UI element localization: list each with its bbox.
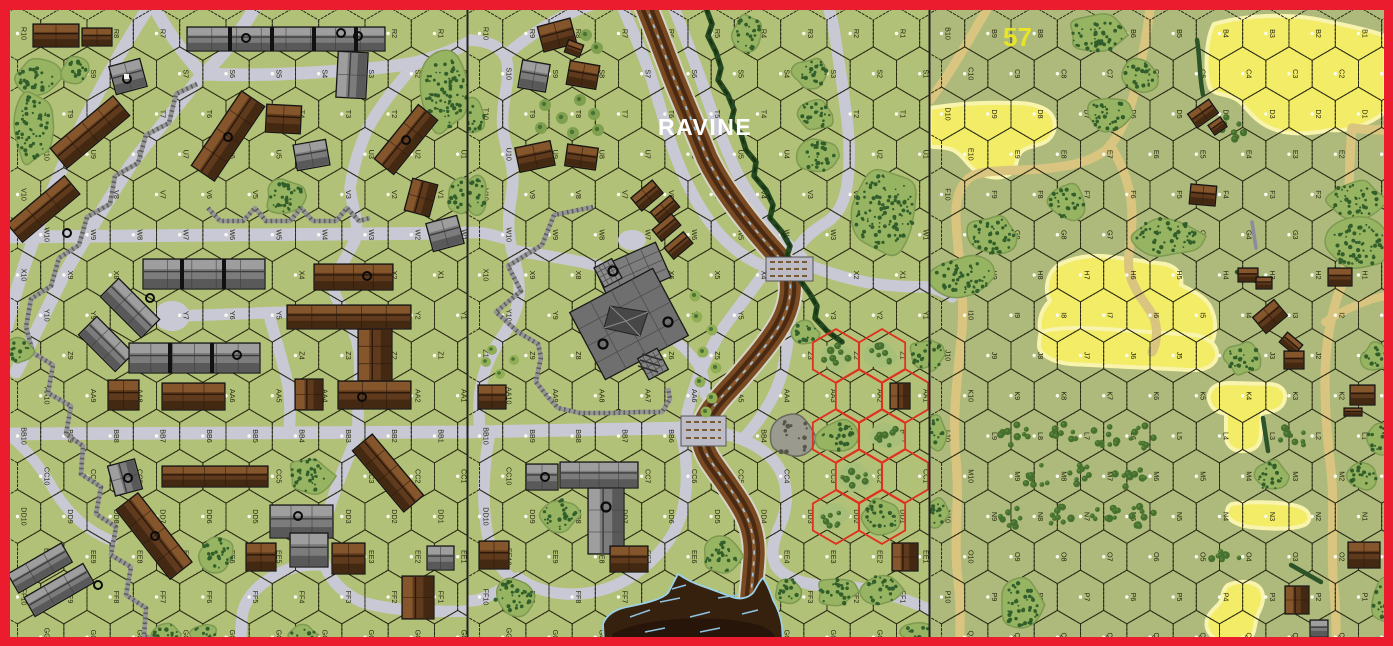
svg-text:H5: H5 (1175, 270, 1184, 279)
svg-text:S9: S9 (551, 69, 560, 78)
svg-text:W9: W9 (551, 229, 560, 240)
svg-text:L2: L2 (1314, 432, 1323, 440)
svg-text:V2: V2 (390, 190, 399, 199)
svg-text:FF3: FF3 (344, 591, 353, 604)
svg-text:G3: G3 (1291, 230, 1300, 240)
svg-text:DD3: DD3 (344, 509, 353, 523)
svg-text:X2: X2 (852, 271, 861, 280)
svg-text:C10: C10 (967, 67, 976, 80)
svg-text:V9: V9 (528, 190, 537, 199)
svg-text:FF7: FF7 (158, 591, 167, 604)
svg-text:W2: W2 (413, 229, 422, 240)
svg-text:BB6: BB6 (667, 429, 676, 443)
svg-text:EE4: EE4 (783, 550, 792, 564)
svg-text:N5: N5 (1175, 512, 1184, 521)
svg-text:M4: M4 (1245, 471, 1254, 481)
svg-text:FF7: FF7 (620, 591, 629, 604)
svg-text:X1: X1 (436, 271, 445, 280)
svg-text:K7: K7 (1106, 391, 1115, 400)
svg-text:FF8: FF8 (112, 591, 121, 604)
svg-text:I10: I10 (967, 310, 976, 320)
svg-text:BB1: BB1 (436, 429, 445, 443)
svg-text:L7: L7 (1082, 432, 1091, 440)
svg-text:O4: O4 (1245, 552, 1254, 562)
svg-text:X5: X5 (713, 271, 722, 280)
svg-text:R9: R9 (528, 29, 537, 38)
svg-text:Z3: Z3 (344, 351, 353, 359)
svg-text:T4: T4 (759, 110, 768, 118)
svg-text:S6: S6 (690, 69, 699, 78)
svg-text:AA9: AA9 (89, 389, 98, 403)
svg-text:N1: N1 (1360, 512, 1369, 521)
svg-text:B4: B4 (1221, 29, 1230, 38)
svg-text:H2: H2 (1314, 270, 1323, 279)
svg-text:P6: P6 (1129, 593, 1138, 602)
svg-text:S10: S10 (505, 67, 514, 80)
svg-text:BB8: BB8 (112, 429, 121, 443)
svg-text:I6: I6 (1152, 312, 1161, 318)
svg-text:W6: W6 (690, 229, 699, 240)
svg-text:BB4: BB4 (297, 429, 306, 443)
svg-text:BB7: BB7 (158, 429, 167, 443)
svg-text:B2: B2 (1314, 29, 1323, 38)
svg-text:H6: H6 (1129, 270, 1138, 279)
svg-text:J9: J9 (990, 352, 999, 360)
svg-text:AA2: AA2 (413, 389, 422, 403)
svg-text:DD5: DD5 (251, 509, 260, 523)
svg-text:FF3: FF3 (806, 591, 815, 604)
svg-text:E2: E2 (1337, 150, 1346, 159)
svg-text:BB8: BB8 (574, 429, 583, 443)
svg-text:V1: V1 (436, 190, 445, 199)
svg-text:C7: C7 (1106, 69, 1115, 78)
svg-text:CC6: CC6 (690, 469, 699, 483)
svg-text:T7: T7 (620, 110, 629, 118)
svg-text:Z1: Z1 (898, 351, 907, 359)
svg-text:S6: S6 (228, 69, 237, 78)
svg-text:M6: M6 (1152, 471, 1161, 481)
svg-text:CC2: CC2 (413, 469, 422, 483)
svg-text:S5: S5 (274, 69, 283, 78)
svg-text:E6: E6 (1152, 150, 1161, 159)
svg-text:L8: L8 (1036, 432, 1045, 440)
svg-text:BB7: BB7 (620, 429, 629, 443)
svg-text:D10: D10 (944, 107, 953, 120)
svg-text:O5: O5 (1198, 552, 1207, 562)
svg-text:D3: D3 (1268, 109, 1277, 118)
svg-text:S3: S3 (367, 69, 376, 78)
svg-text:H1: H1 (1360, 270, 1369, 279)
svg-text:R7: R7 (620, 29, 629, 38)
svg-text:CC10: CC10 (505, 467, 514, 485)
svg-text:R8: R8 (112, 29, 121, 38)
svg-text:BB2: BB2 (390, 429, 399, 443)
svg-text:V3: V3 (344, 190, 353, 199)
svg-text:U9: U9 (89, 150, 98, 159)
svg-text:M2: M2 (1337, 471, 1346, 481)
svg-text:I8: I8 (1059, 312, 1068, 318)
svg-text:Z4: Z4 (297, 351, 306, 359)
svg-text:S5: S5 (736, 69, 745, 78)
svg-text:DD9: DD9 (66, 509, 75, 523)
svg-text:E5: E5 (1198, 150, 1207, 159)
svg-text:FF5: FF5 (251, 591, 260, 604)
svg-text:S7: S7 (182, 69, 191, 78)
svg-text:R5: R5 (713, 29, 722, 38)
svg-text:U8: U8 (597, 150, 606, 159)
svg-text:M9: M9 (1013, 471, 1022, 481)
svg-text:N4: N4 (1221, 512, 1230, 521)
svg-text:N8: N8 (1036, 512, 1045, 521)
svg-text:U4: U4 (783, 150, 792, 159)
svg-text:Y5: Y5 (736, 311, 745, 320)
svg-text:AA6: AA6 (690, 389, 699, 403)
svg-text:B9: B9 (990, 29, 999, 38)
svg-text:S7: S7 (644, 69, 653, 78)
svg-text:C3: C3 (1291, 69, 1300, 78)
svg-text:CC7: CC7 (644, 469, 653, 483)
svg-text:F5: F5 (1175, 190, 1184, 198)
svg-text:W8: W8 (135, 229, 144, 240)
svg-text:S2: S2 (875, 69, 884, 78)
svg-text:DD6: DD6 (205, 509, 214, 523)
svg-text:T3: T3 (344, 110, 353, 118)
svg-text:FF1: FF1 (436, 591, 445, 604)
svg-text:X10: X10 (482, 269, 491, 282)
svg-text:X1: X1 (898, 271, 907, 280)
svg-text:V5: V5 (251, 190, 260, 199)
svg-text:E4: E4 (1245, 150, 1254, 159)
svg-text:G7: G7 (1106, 230, 1115, 240)
svg-text:X8: X8 (574, 271, 583, 280)
svg-text:AA7: AA7 (644, 389, 653, 403)
svg-text:K8: K8 (1059, 391, 1068, 400)
svg-text:C9: C9 (1013, 69, 1022, 78)
svg-text:T9: T9 (528, 110, 537, 118)
svg-text:BB3: BB3 (344, 429, 353, 443)
svg-text:F10: F10 (944, 188, 953, 200)
svg-text:DD5: DD5 (713, 509, 722, 523)
svg-text:J3: J3 (1268, 352, 1277, 360)
svg-text:BB9: BB9 (528, 429, 537, 443)
svg-text:B5: B5 (1175, 29, 1184, 38)
svg-text:CC5: CC5 (274, 469, 283, 483)
svg-text:U2: U2 (875, 150, 884, 159)
svg-text:J6: J6 (1129, 352, 1138, 360)
svg-text:EE2: EE2 (875, 550, 884, 564)
svg-text:BB10: BB10 (20, 427, 29, 445)
svg-text:D8: D8 (1036, 109, 1045, 118)
svg-text:Y7: Y7 (182, 311, 191, 320)
svg-text:R10: R10 (482, 27, 491, 40)
svg-text:T2: T2 (852, 110, 861, 118)
svg-text:I5: I5 (1198, 312, 1207, 318)
svg-text:U10: U10 (505, 148, 514, 161)
svg-text:T8: T8 (574, 110, 583, 118)
svg-text:DD1: DD1 (436, 509, 445, 523)
svg-text:T6: T6 (205, 110, 214, 118)
svg-text:EE3: EE3 (367, 550, 376, 564)
svg-text:N9: N9 (990, 512, 999, 521)
svg-text:N2: N2 (1314, 512, 1323, 521)
svg-text:T1: T1 (898, 110, 907, 118)
svg-text:F3: F3 (1268, 190, 1277, 198)
svg-text:Z9: Z9 (66, 351, 75, 359)
svg-text:C4: C4 (1245, 69, 1254, 78)
svg-text:EE9: EE9 (89, 550, 98, 564)
svg-text:D5: D5 (1175, 109, 1184, 118)
svg-text:K6: K6 (1152, 391, 1161, 400)
svg-text:F6: F6 (1129, 190, 1138, 198)
svg-text:E7: E7 (1106, 150, 1115, 159)
svg-text:O7: O7 (1106, 552, 1115, 562)
svg-text:DD10: DD10 (20, 507, 29, 525)
svg-text:O3: O3 (1291, 552, 1300, 562)
svg-text:BB5: BB5 (251, 429, 260, 443)
svg-text:P10: P10 (944, 591, 953, 604)
svg-text:Z6: Z6 (667, 351, 676, 359)
svg-text:W6: W6 (228, 229, 237, 240)
svg-text:FF6: FF6 (205, 591, 214, 604)
svg-text:X10: X10 (20, 269, 29, 282)
svg-text:H7: H7 (1082, 270, 1091, 279)
svg-text:B10: B10 (944, 27, 953, 40)
svg-text:FF2: FF2 (390, 591, 399, 604)
svg-text:U5: U5 (274, 150, 283, 159)
svg-text:X9: X9 (66, 271, 75, 280)
svg-text:FF4: FF4 (297, 591, 306, 604)
svg-text:N3: N3 (1268, 512, 1277, 521)
svg-text:I3: I3 (1291, 312, 1300, 318)
svg-text:Z5: Z5 (713, 351, 722, 359)
svg-text:K4: K4 (1245, 391, 1254, 400)
svg-text:R10: R10 (20, 27, 29, 40)
svg-text:W8: W8 (597, 229, 606, 240)
svg-text:FF10: FF10 (482, 589, 491, 606)
svg-text:F2: F2 (1314, 190, 1323, 198)
svg-text:W10: W10 (505, 227, 514, 242)
svg-text:V10: V10 (20, 188, 29, 201)
svg-text:Y5: Y5 (274, 311, 283, 320)
svg-text:DD6: DD6 (667, 509, 676, 523)
svg-text:M5: M5 (1198, 471, 1207, 481)
svg-text:D1: D1 (1360, 109, 1369, 118)
svg-text:B8: B8 (1036, 29, 1045, 38)
svg-text:E8: E8 (1059, 150, 1068, 159)
svg-text:CC4: CC4 (783, 469, 792, 483)
svg-text:Z9: Z9 (528, 351, 537, 359)
svg-text:L3: L3 (1268, 432, 1277, 440)
svg-text:B1: B1 (1360, 29, 1369, 38)
svg-text:J8: J8 (1036, 352, 1045, 360)
svg-text:W3: W3 (367, 229, 376, 240)
svg-text:L4: L4 (1221, 432, 1230, 440)
svg-text:Y3: Y3 (829, 311, 838, 320)
svg-text:AA8: AA8 (597, 389, 606, 403)
svg-text:U7: U7 (644, 150, 653, 159)
svg-text:F4: F4 (1221, 190, 1230, 198)
svg-text:Y9: Y9 (551, 311, 560, 320)
svg-text:U2: U2 (413, 150, 422, 159)
svg-text:K5: K5 (1198, 391, 1207, 400)
svg-text:C8: C8 (1059, 69, 1068, 78)
svg-text:RAVINE: RAVINE (658, 114, 752, 140)
svg-text:Z8: Z8 (574, 351, 583, 359)
svg-text:T2: T2 (390, 110, 399, 118)
svg-text:DD2: DD2 (390, 509, 399, 523)
svg-text:CC10: CC10 (43, 467, 52, 485)
svg-text:F9: F9 (990, 190, 999, 198)
svg-text:S4: S4 (783, 69, 792, 78)
svg-text:B6: B6 (1129, 29, 1138, 38)
svg-text:S9: S9 (89, 69, 98, 78)
svg-text:Y6: Y6 (228, 311, 237, 320)
svg-text:H8: H8 (1036, 270, 1045, 279)
svg-text:BB6: BB6 (205, 429, 214, 443)
svg-text:O10: O10 (967, 550, 976, 564)
svg-text:W10: W10 (43, 227, 52, 242)
svg-text:M3: M3 (1291, 471, 1300, 481)
svg-text:W4: W4 (321, 229, 330, 240)
svg-text:K9: K9 (1013, 391, 1022, 400)
svg-text:V7: V7 (620, 190, 629, 199)
svg-text:X4: X4 (297, 271, 306, 280)
svg-text:EE9: EE9 (551, 550, 560, 564)
svg-text:AA5: AA5 (274, 389, 283, 403)
svg-text:W5: W5 (274, 229, 283, 240)
svg-text:F8: F8 (1036, 190, 1045, 198)
svg-text:B3: B3 (1268, 29, 1277, 38)
svg-text:EE3: EE3 (829, 550, 838, 564)
svg-text:R7: R7 (158, 29, 167, 38)
svg-text:BB4: BB4 (759, 429, 768, 443)
svg-text:W3: W3 (829, 229, 838, 240)
svg-text:Y2: Y2 (875, 311, 884, 320)
svg-text:AA6: AA6 (228, 389, 237, 403)
svg-text:EE6: EE6 (690, 550, 699, 564)
svg-text:P1: P1 (1360, 593, 1369, 602)
svg-text:I7: I7 (1106, 312, 1115, 318)
svg-text:R1: R1 (436, 29, 445, 38)
svg-text:S4: S4 (321, 69, 330, 78)
svg-text:R2: R2 (852, 29, 861, 38)
svg-text:X9: X9 (528, 271, 537, 280)
svg-text:Y2: Y2 (413, 311, 422, 320)
svg-text:O2: O2 (1337, 552, 1346, 562)
svg-text:P5: P5 (1175, 593, 1184, 602)
svg-text:Y10: Y10 (43, 309, 52, 322)
svg-text:T7: T7 (158, 110, 167, 118)
svg-text:R2: R2 (390, 29, 399, 38)
svg-text:FF8: FF8 (574, 591, 583, 604)
svg-text:V7: V7 (158, 190, 167, 199)
svg-text:P2: P2 (1314, 593, 1323, 602)
svg-text:DD10: DD10 (482, 507, 491, 525)
svg-text:M10: M10 (967, 469, 976, 483)
svg-text:M8: M8 (1059, 471, 1068, 481)
svg-text:I9: I9 (1013, 312, 1022, 318)
svg-text:EE2: EE2 (413, 550, 422, 564)
svg-text:V8: V8 (574, 190, 583, 199)
svg-text:P7: P7 (1082, 593, 1091, 602)
svg-text:C2: C2 (1337, 69, 1346, 78)
svg-text:E3: E3 (1291, 150, 1300, 159)
svg-text:V6: V6 (205, 190, 214, 199)
svg-text:K3: K3 (1291, 391, 1300, 400)
svg-text:U7: U7 (182, 150, 191, 159)
svg-text:Z1: Z1 (436, 351, 445, 359)
svg-text:I2: I2 (1337, 312, 1346, 318)
svg-text:T9: T9 (66, 110, 75, 118)
svg-text:F7: F7 (1082, 190, 1091, 198)
svg-text:R3: R3 (806, 29, 815, 38)
svg-text:57: 57 (1003, 22, 1032, 52)
svg-text:G8: G8 (1059, 230, 1068, 240)
svg-text:P9: P9 (990, 593, 999, 602)
svg-text:DD9: DD9 (528, 509, 537, 523)
svg-text:O6: O6 (1152, 552, 1161, 562)
svg-text:E9: E9 (1013, 150, 1022, 159)
svg-text:J2: J2 (1314, 352, 1323, 360)
svg-text:S3: S3 (829, 69, 838, 78)
svg-text:EE8: EE8 (135, 550, 144, 564)
svg-text:D9: D9 (990, 109, 999, 118)
svg-text:P3: P3 (1268, 593, 1277, 602)
svg-text:J5: J5 (1175, 352, 1184, 360)
svg-text:X8: X8 (112, 271, 121, 280)
svg-text:BB10: BB10 (482, 427, 491, 445)
svg-text:W7: W7 (182, 229, 191, 240)
svg-text:O8: O8 (1059, 552, 1068, 562)
svg-text:R1: R1 (898, 29, 907, 38)
svg-text:K2: K2 (1337, 391, 1346, 400)
svg-text:V3: V3 (806, 190, 815, 199)
svg-text:K10: K10 (967, 389, 976, 402)
svg-text:AA4: AA4 (783, 389, 792, 403)
svg-text:E10: E10 (967, 148, 976, 161)
svg-text:H4: H4 (1221, 270, 1230, 279)
svg-text:D2: D2 (1314, 109, 1323, 118)
svg-text:J7: J7 (1082, 352, 1091, 360)
svg-text:O9: O9 (1013, 552, 1022, 562)
svg-text:L5: L5 (1175, 432, 1184, 440)
svg-text:P4: P4 (1221, 593, 1230, 602)
svg-text:W9: W9 (89, 229, 98, 240)
